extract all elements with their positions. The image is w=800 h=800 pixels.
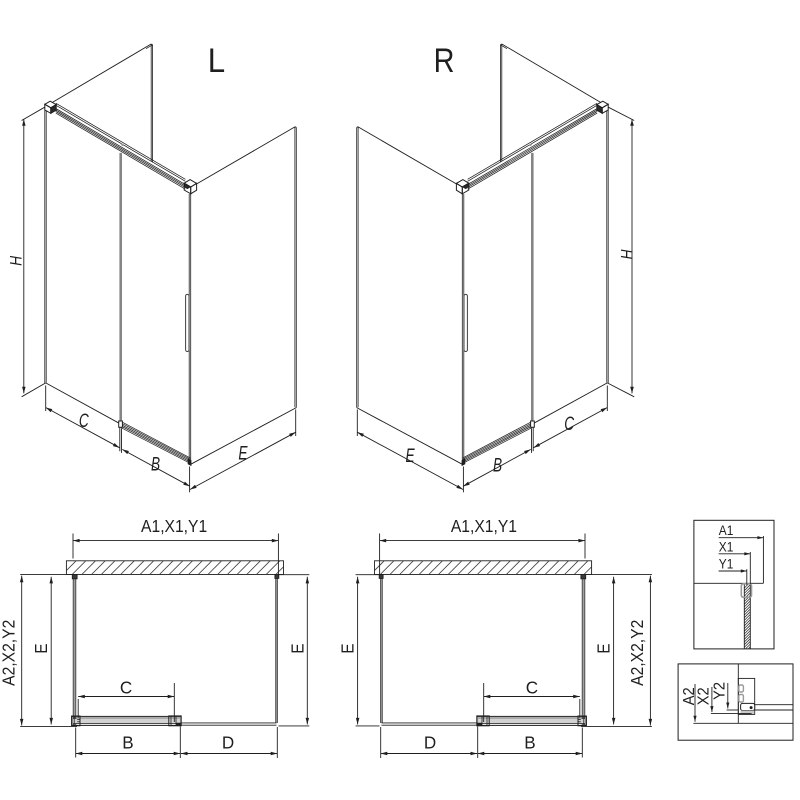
svg-text:H: H: [618, 249, 637, 260]
svg-text:C: C: [526, 677, 538, 698]
svg-text:A1: A1: [719, 522, 734, 538]
svg-text:E: E: [238, 442, 248, 464]
svg-text:X2: X2: [695, 687, 712, 705]
svg-text:E: E: [31, 643, 51, 653]
svg-text:A1,X1,Y1: A1,X1,Y1: [451, 516, 517, 536]
svg-text:A2,X2,Y2: A2,X2,Y2: [627, 620, 647, 686]
svg-text:B: B: [122, 732, 133, 753]
svg-text:R: R: [434, 41, 455, 80]
svg-text:B: B: [524, 732, 535, 753]
svg-text:Y1: Y1: [719, 556, 734, 572]
svg-text:H: H: [7, 255, 26, 266]
svg-text:C: C: [120, 677, 132, 698]
svg-text:E: E: [337, 643, 357, 653]
svg-text:E: E: [406, 445, 416, 467]
svg-text:X1: X1: [719, 538, 734, 554]
svg-text:D: D: [424, 732, 436, 753]
svg-text:E: E: [287, 643, 307, 653]
svg-text:L: L: [208, 41, 225, 80]
svg-text:A1,X1,Y1: A1,X1,Y1: [141, 516, 207, 536]
svg-text:A2,X2,Y2: A2,X2,Y2: [0, 620, 19, 686]
svg-text:C: C: [564, 413, 575, 435]
svg-text:B: B: [493, 454, 502, 476]
svg-text:E: E: [593, 643, 613, 653]
svg-text:C: C: [79, 410, 90, 432]
svg-text:Y2: Y2: [711, 682, 728, 700]
svg-text:D: D: [222, 732, 234, 753]
svg-text:B: B: [151, 453, 160, 475]
